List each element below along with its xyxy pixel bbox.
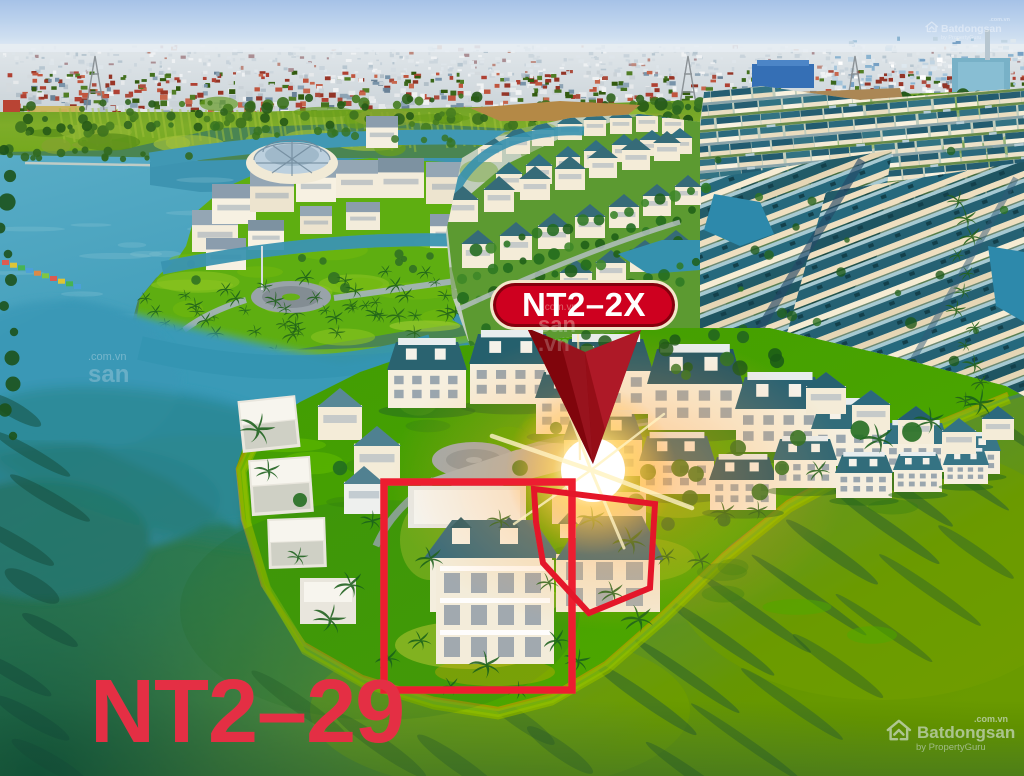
svg-text:NT2–29: NT2–29 bbox=[90, 662, 404, 762]
svg-text:san: san bbox=[88, 361, 129, 388]
svg-text:Batdongsan: Batdongsan bbox=[941, 23, 1002, 35]
svg-text:by PropertyGuru: by PropertyGuru bbox=[941, 35, 981, 41]
svg-text:.com.vn: .com.vn bbox=[989, 17, 1010, 23]
svg-text:Batdongsan: Batdongsan bbox=[917, 723, 1015, 742]
svg-text:.vn: .vn bbox=[538, 331, 570, 356]
svg-text:.com.vn: .com.vn bbox=[974, 714, 1008, 724]
svg-text:by PropertyGuru: by PropertyGuru bbox=[916, 742, 986, 753]
